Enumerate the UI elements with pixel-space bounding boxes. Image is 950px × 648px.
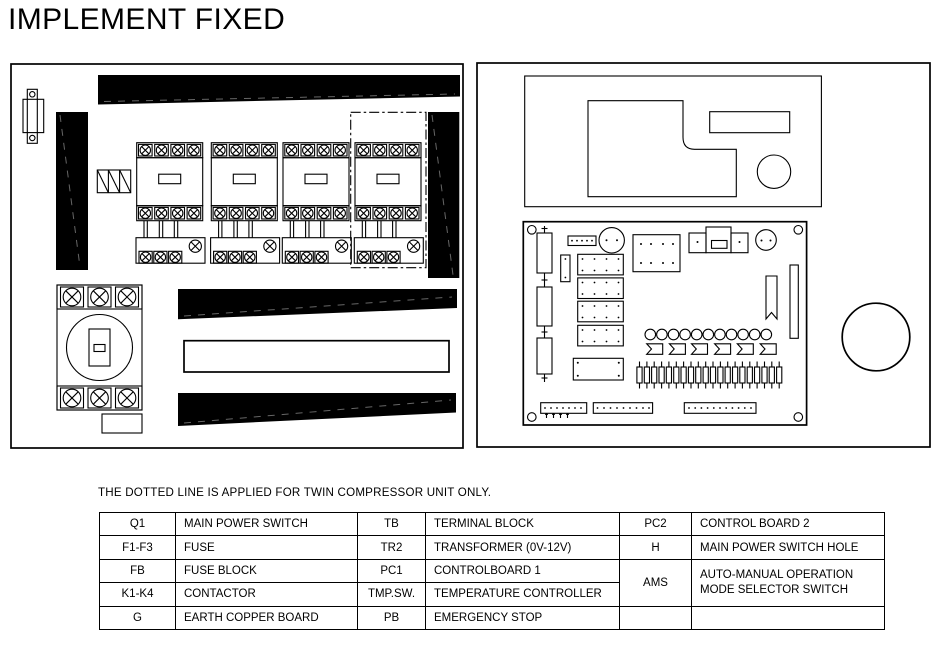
legend-code-cell: TB [358,513,426,536]
left-panel [11,64,463,448]
legend-code-cell: PC1 [358,559,426,582]
legend-desc-cell: AUTO-MANUAL OPERATION MODE SELECTOR SWIT… [692,559,885,606]
table-row: G EARTH COPPER BOARD PB EMERGENCY STOP [100,606,885,629]
legend-code-cell: FB [100,559,176,582]
legend-code-cell: PC2 [620,513,692,536]
legend-code-cell: TMP.SW. [358,583,426,606]
legend-desc-cell: EMERGENCY STOP [426,606,620,629]
legend-code-cell: F1-F3 [100,536,176,559]
legend-code-cell: AMS [620,559,692,606]
table-row: FB FUSE BLOCK PC1 CONTROLBOARD 1 AMS AUT… [100,559,885,582]
dotted-line-note: THE DOTTED LINE IS APPLIED FOR TWIN COMP… [98,486,491,499]
legend-code-cell: PB [358,606,426,629]
legend-code-cell: H [620,536,692,559]
legend-desc-cell [692,606,885,629]
legend-desc-cell: FUSE BLOCK [176,559,358,582]
legend-desc-cell: TRANSFORMER (0V-12V) [426,536,620,559]
legend-table: Q1 MAIN POWER SWITCH TB TERMINAL BLOCK P… [99,512,885,630]
panel-layout-diagram [0,0,950,460]
wire-duct-right [428,112,459,278]
legend-desc-cell: MAIN POWER SWITCH [176,513,358,536]
table-row: Q1 MAIN POWER SWITCH TB TERMINAL BLOCK P… [100,513,885,536]
legend-code-cell: K1-K4 [100,583,176,606]
legend-desc-cell: CONTACTOR [176,583,358,606]
legend-desc-cell: CONTROLBOARD 1 [426,559,620,582]
legend-code-cell: Q1 [100,513,176,536]
legend-desc-cell: TEMPERATURE CONTROLLER [426,583,620,606]
wire-duct-left [56,112,88,270]
legend-code-cell [620,606,692,629]
table-row: F1-F3 FUSE TR2 TRANSFORMER (0V-12V) H MA… [100,536,885,559]
legend-code-cell: G [100,606,176,629]
right-panel-border [477,63,930,447]
legend-desc-cell: EARTH COPPER BOARD [176,606,358,629]
legend-desc-cell: CONTROL BOARD 2 [692,513,885,536]
legend-code-cell: TR2 [358,536,426,559]
legend-desc-cell: FUSE [176,536,358,559]
page: IMPLEMENT FIXED [0,0,950,648]
legend-desc-cell: MAIN POWER SWITCH HOLE [692,536,885,559]
legend-desc-cell: TERMINAL BLOCK [426,513,620,536]
right-panel [477,63,930,447]
